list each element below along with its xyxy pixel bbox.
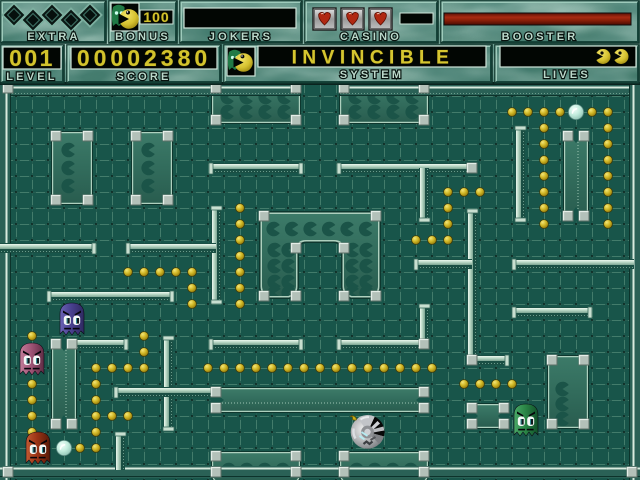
svg-text:BOOSTER: BOOSTER bbox=[502, 31, 579, 43]
svg-text:JOKERS: JOKERS bbox=[209, 31, 273, 43]
svg-text:SYSTEM: SYSTEM bbox=[340, 69, 404, 81]
svg-text:100: 100 bbox=[143, 9, 169, 25]
svg-text:00002380: 00002380 bbox=[77, 45, 211, 71]
svg-text:LIVES: LIVES bbox=[543, 69, 591, 81]
svg-text:INVINCIBLE: INVINCIBLE bbox=[292, 48, 455, 69]
svg-text:CASINO: CASINO bbox=[340, 31, 402, 43]
svg-text:LEVEL: LEVEL bbox=[6, 71, 57, 83]
svg-text:SCORE: SCORE bbox=[116, 71, 171, 83]
svg-text:EXTRA: EXTRA bbox=[27, 31, 80, 43]
svg-text:001: 001 bbox=[9, 45, 55, 71]
svg-text:BONUS: BONUS bbox=[115, 31, 171, 43]
